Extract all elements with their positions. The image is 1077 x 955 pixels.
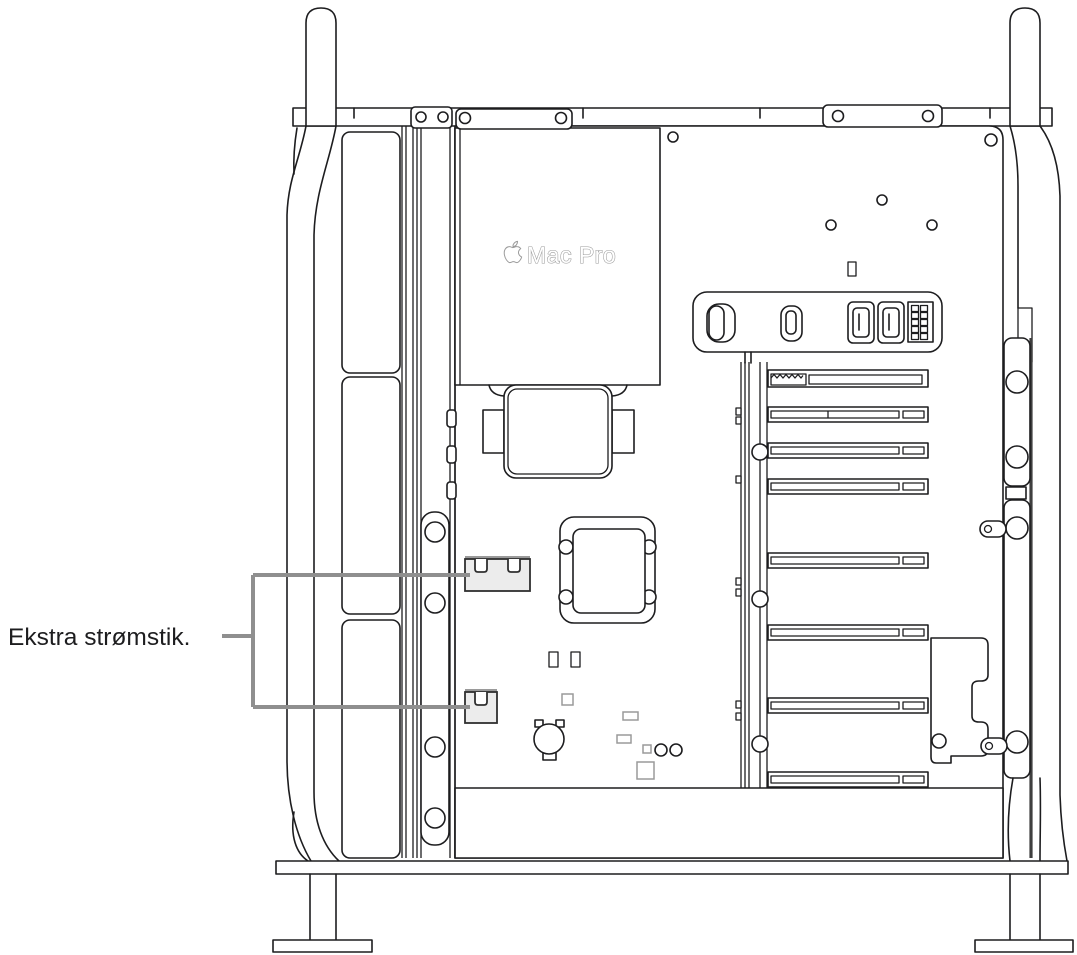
auxiliary-power-connector-upper bbox=[465, 558, 530, 592]
cpu-screw-hole bbox=[559, 540, 573, 554]
l-bracket-hole bbox=[932, 734, 946, 748]
bracket-hole bbox=[438, 112, 448, 122]
panel-hole bbox=[985, 134, 997, 146]
rail-tab bbox=[447, 482, 456, 499]
heatsink-tab-left bbox=[483, 410, 504, 453]
left-frame-inner-edge bbox=[314, 126, 339, 861]
right-handle-post bbox=[1010, 8, 1040, 126]
rail-tab bbox=[447, 410, 456, 427]
bracket-hole bbox=[923, 111, 934, 122]
pcie-slot-row bbox=[768, 443, 928, 458]
drive-bays bbox=[342, 132, 400, 858]
component-capacitor bbox=[655, 744, 667, 756]
right-foot bbox=[975, 940, 1073, 952]
panel-hole bbox=[668, 132, 678, 142]
pcie-slot-row bbox=[768, 698, 928, 713]
pcie-slot-row bbox=[768, 407, 928, 422]
connector-notch bbox=[475, 692, 487, 705]
rail-screw-hole bbox=[425, 737, 445, 757]
display-port-inner bbox=[883, 308, 899, 337]
cpu-screw-hole bbox=[559, 590, 573, 604]
rail-screw-hole bbox=[425, 593, 445, 613]
heatsink-group bbox=[483, 385, 634, 478]
rail-hole bbox=[1006, 517, 1028, 539]
bottom-compartment bbox=[455, 788, 1003, 858]
heatsink-tab-right bbox=[612, 410, 634, 453]
rail-screw-hole bbox=[425, 522, 445, 542]
connector-notch bbox=[475, 559, 487, 572]
strip-keyhole bbox=[752, 591, 768, 607]
right-frame-inner-edge bbox=[1010, 126, 1018, 308]
io-panel-group bbox=[693, 292, 942, 363]
rail-hole bbox=[1006, 731, 1028, 753]
psu-logo-text: Mac Pro bbox=[527, 242, 616, 268]
heatsink-body bbox=[504, 385, 612, 478]
left-frame-outer-edge bbox=[287, 126, 311, 861]
panel-hole bbox=[877, 195, 887, 205]
pcie-slot-1 bbox=[768, 370, 928, 387]
panel-hole bbox=[927, 220, 937, 230]
mac-pro-internals-diagram: Mac Pro Ekstra strømstik. bbox=[0, 0, 1077, 955]
bracket-hole bbox=[556, 113, 567, 124]
drive-bay-1 bbox=[342, 132, 400, 373]
left-leg-curve bbox=[293, 812, 308, 861]
center-rails bbox=[402, 126, 456, 858]
bracket-hole bbox=[460, 113, 471, 124]
cpu-bracket-inner bbox=[573, 529, 645, 613]
cpu-bracket-group bbox=[559, 517, 656, 623]
bracket-hole bbox=[833, 111, 844, 122]
right-leg-curves bbox=[1008, 778, 1040, 861]
component-capacitor bbox=[670, 744, 682, 756]
pcie-slot-row bbox=[768, 479, 928, 494]
usb-c-port-inner bbox=[786, 311, 796, 334]
drive-bay-3 bbox=[342, 620, 400, 858]
strip-keyhole bbox=[752, 444, 768, 460]
bottom-frame-bar bbox=[276, 861, 1068, 874]
diagram-canvas: Mac Pro Ekstra strømstik. bbox=[0, 0, 1077, 955]
callout-label: Ekstra strømstik. bbox=[8, 624, 190, 651]
left-handle-post bbox=[306, 8, 336, 126]
top-bracket-psu bbox=[456, 109, 572, 129]
pcie-slot-row bbox=[768, 772, 928, 787]
strip-keyhole bbox=[752, 736, 768, 752]
rail-tab bbox=[447, 446, 456, 463]
rail-screw-hole bbox=[425, 808, 445, 828]
left-foot bbox=[273, 940, 372, 952]
drive-bay-2 bbox=[342, 377, 400, 614]
power-button-inner bbox=[709, 306, 724, 340]
connector-notch bbox=[508, 559, 520, 572]
battery-cell bbox=[534, 724, 564, 754]
panel-hole bbox=[826, 220, 836, 230]
right-frame-outer-edge bbox=[1040, 126, 1067, 861]
pcie-slot-row bbox=[768, 625, 928, 640]
bracket-hole bbox=[416, 112, 426, 122]
feet-legs bbox=[310, 874, 1040, 940]
rail-latch bbox=[1006, 487, 1026, 499]
screw-rail bbox=[421, 512, 449, 845]
rail-hole bbox=[1006, 371, 1028, 393]
display-port-inner bbox=[853, 308, 869, 337]
pcie-slot-row bbox=[768, 553, 928, 568]
rail-hole bbox=[1006, 446, 1028, 468]
